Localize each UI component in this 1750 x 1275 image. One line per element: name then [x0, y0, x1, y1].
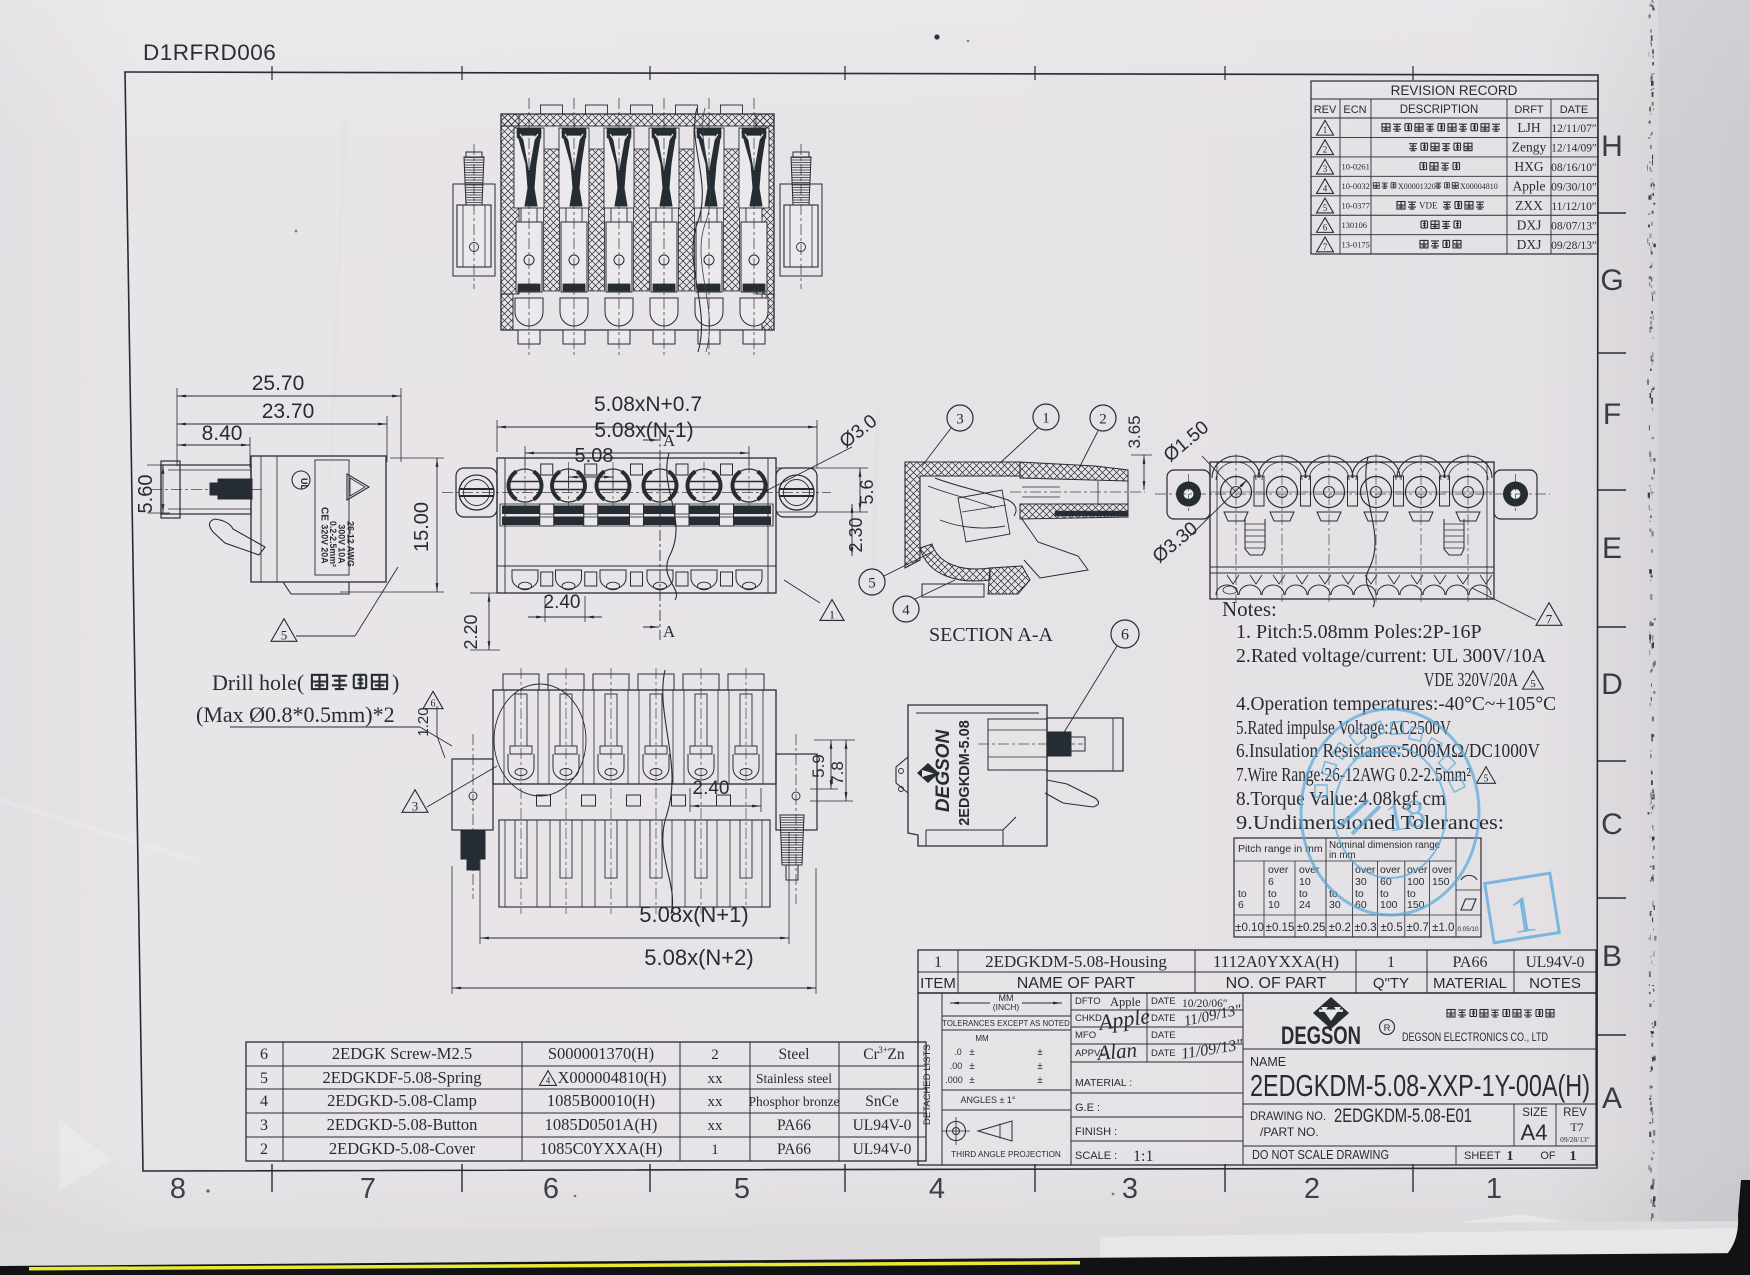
svg-text:2.40: 2.40 — [693, 778, 730, 799]
svg-text:2EDGKDM-5.08: 2EDGKDM-5.08 — [957, 720, 973, 826]
svg-text:7: 7 — [360, 1173, 376, 1205]
svg-text:G.E :: G.E : — [1075, 1102, 1100, 1114]
svg-text:MFO: MFO — [1075, 1030, 1096, 1041]
svg-text:2.20: 2.20 — [461, 614, 481, 649]
svg-text:±0.2: ±0.2 — [1329, 922, 1351, 934]
svg-text:±0.25: ±0.25 — [1297, 922, 1326, 934]
svg-text:6: 6 — [1323, 222, 1328, 232]
svg-text:5: 5 — [868, 575, 876, 591]
svg-text:±: ± — [1037, 1047, 1043, 1058]
svg-text:E: E — [1602, 532, 1622, 565]
svg-text:1. Pitch:5.08mm Poles:2P-16P: 1. Pitch:5.08mm Poles:2P-16P — [1236, 621, 1482, 643]
svg-text:±0.10: ±0.10 — [1235, 922, 1264, 934]
svg-text:Apple: Apple — [1513, 179, 1546, 194]
svg-text:Notes:: Notes: — [1222, 597, 1277, 621]
svg-text:3+: 3+ — [878, 1045, 888, 1055]
svg-text:CE: CE — [319, 507, 330, 521]
svg-text:±0.5: ±0.5 — [1380, 922, 1402, 934]
svg-text:over: over — [1380, 864, 1401, 876]
svg-text:ZXX: ZXX — [1515, 198, 1543, 213]
svg-text:4.Operation temperatures:-40°C: 4.Operation temperatures:-40°C~+105°C — [1236, 693, 1556, 715]
svg-text:HXG: HXG — [1514, 159, 1543, 174]
svg-text:3: 3 — [260, 1117, 268, 1134]
svg-text:1: 1 — [829, 607, 835, 621]
svg-text:5.08x(N+1): 5.08x(N+1) — [639, 902, 748, 927]
svg-text:1085B00010(H): 1085B00010(H) — [547, 1091, 655, 1110]
svg-text:10-0261: 10-0261 — [1342, 162, 1370, 172]
svg-text:09/28/13″: 09/28/13″ — [1560, 1135, 1590, 1144]
svg-text:R: R — [1384, 1023, 1391, 1034]
svg-text:2.Rated voltage/current: UL: 2.Rated voltage/current: UL 300V/10A — [1236, 645, 1547, 667]
svg-text:over: over — [1268, 864, 1289, 876]
svg-text:3.65: 3.65 — [1125, 415, 1144, 448]
svg-text:2EDGKD-5.08-Button: 2EDGKD-5.08-Button — [327, 1115, 478, 1134]
svg-text:3: 3 — [1122, 1173, 1138, 1205]
svg-text:6: 6 — [260, 1046, 268, 1063]
svg-text:1: 1 — [711, 1142, 719, 1158]
svg-text:REV: REV — [1314, 104, 1337, 116]
svg-text:±: ± — [969, 1075, 975, 1086]
svg-text:130106: 130106 — [1342, 220, 1368, 230]
svg-text:2EDGK Screw-M2.5: 2EDGK Screw-M2.5 — [332, 1044, 472, 1063]
svg-text:MM: MM — [975, 1034, 989, 1043]
svg-text:ANGLES ± 1°: ANGLES ± 1° — [960, 1095, 1015, 1105]
svg-text:REV: REV — [1563, 1107, 1587, 1119]
svg-text:08/16/10″: 08/16/10″ — [1551, 162, 1597, 174]
svg-text:B: B — [1602, 940, 1622, 973]
svg-text:Zn: Zn — [887, 1046, 904, 1063]
svg-text:G: G — [1600, 264, 1623, 297]
svg-text:PA66: PA66 — [777, 1117, 811, 1134]
svg-text:X00001320: X00001320 — [1398, 182, 1436, 191]
svg-text:09/28/13″: 09/28/13″ — [1551, 240, 1597, 252]
svg-text:±: ± — [969, 1047, 975, 1058]
svg-text:xx: xx — [708, 1094, 724, 1110]
svg-text:VDE: VDE — [1419, 201, 1438, 211]
svg-text:SHEET: SHEET — [1464, 1150, 1501, 1162]
svg-text:5.60: 5.60 — [135, 475, 157, 514]
svg-text:NAME: NAME — [1250, 1055, 1286, 1069]
svg-text:A4: A4 — [1521, 1120, 1548, 1145]
svg-text:F: F — [1603, 398, 1621, 431]
svg-text:UL94V-0: UL94V-0 — [853, 1117, 912, 1134]
svg-text:DRFT: DRFT — [1514, 104, 1544, 116]
svg-text:12/11/07″: 12/11/07″ — [1551, 123, 1596, 135]
svg-text:Alan: Alan — [1094, 1038, 1138, 1066]
svg-text:X000004810(H): X000004810(H) — [557, 1068, 666, 1087]
svg-text:2EDGKD-5.08-Clamp: 2EDGKD-5.08-Clamp — [327, 1091, 477, 1110]
svg-text:3: 3 — [956, 411, 964, 427]
svg-text:10: 10 — [1299, 876, 1311, 888]
svg-text:SnCe: SnCe — [865, 1093, 899, 1110]
svg-text:±: ± — [1037, 1061, 1043, 1072]
svg-text:2EDGKDM-5.08-E01: 2EDGKDM-5.08-E01 — [1334, 1106, 1472, 1127]
svg-text:08/07/13″: 08/07/13″ — [1551, 220, 1597, 232]
svg-text:1: 1 — [1507, 1149, 1514, 1164]
svg-text:DEGSON: DEGSON — [933, 729, 954, 813]
svg-text:2EDGKDM-5.08-XXP-1Y-00A(H): 2EDGKDM-5.08-XXP-1Y-00A(H) — [1250, 1068, 1590, 1103]
svg-text:2EDGKDF-5.08-Spring: 2EDGKDF-5.08-Spring — [322, 1068, 481, 1087]
svg-text:TOLERANCES EXCEPT AS NOTED: TOLERANCES EXCEPT AS NOTED — [942, 1019, 1070, 1028]
svg-text:VDE 320V/20A: VDE 320V/20A — [1424, 669, 1518, 691]
svg-text:.00: .00 — [950, 1061, 963, 1071]
svg-text:6: 6 — [1238, 899, 1244, 911]
svg-text:DXJ: DXJ — [1517, 217, 1542, 232]
svg-text:0.05/10: 0.05/10 — [1457, 926, 1479, 933]
svg-text:4: 4 — [902, 602, 910, 618]
svg-text:Phosphor bronze: Phosphor bronze — [748, 1094, 839, 1109]
svg-text:4: 4 — [260, 1093, 268, 1110]
svg-text:1085D0501A(H): 1085D0501A(H) — [545, 1115, 658, 1134]
svg-text:10: 10 — [1268, 899, 1280, 911]
svg-text:7.8: 7.8 — [828, 761, 847, 785]
svg-text:7: 7 — [1546, 611, 1553, 626]
svg-text:6: 6 — [1268, 876, 1274, 888]
svg-text:18: 18 — [1382, 790, 1429, 841]
svg-text:5: 5 — [1530, 678, 1536, 690]
svg-text:2EDGKD-5.08-Cover: 2EDGKD-5.08-Cover — [329, 1139, 476, 1158]
svg-text:ITEM: ITEM — [920, 975, 956, 992]
svg-text:PA66: PA66 — [777, 1141, 811, 1158]
svg-text:C: C — [1601, 808, 1623, 841]
svg-text:SCALE :: SCALE : — [1075, 1150, 1117, 1162]
svg-text:S000001370(H): S000001370(H) — [548, 1044, 654, 1063]
svg-text:A: A — [1602, 1082, 1622, 1115]
svg-text:2EDGKDM-5.08-Housing: 2EDGKDM-5.08-Housing — [985, 952, 1167, 971]
svg-text:1: 1 — [1570, 1149, 1577, 1164]
svg-text:4: 4 — [546, 1075, 551, 1085]
svg-text:DEGSON: DEGSON — [1281, 1022, 1361, 1050]
svg-text:DATE: DATE — [1560, 104, 1589, 116]
svg-text:LJH: LJH — [1517, 120, 1541, 135]
svg-text:5.08x(N-1): 5.08x(N-1) — [594, 419, 693, 442]
svg-text:30: 30 — [1329, 899, 1341, 911]
svg-text:xx: xx — [708, 1118, 724, 1134]
svg-text:±: ± — [1037, 1075, 1043, 1086]
svg-text:6: 6 — [543, 1173, 559, 1205]
svg-text:ECN: ECN — [1343, 104, 1366, 116]
svg-text:A: A — [663, 622, 676, 641]
svg-text:7: 7 — [1323, 242, 1328, 252]
svg-text:26-12 AWG: 26-12 AWG — [345, 521, 355, 567]
svg-text:1:1: 1:1 — [1133, 1148, 1153, 1165]
svg-text:MATERIAL :: MATERIAL : — [1075, 1077, 1132, 1089]
svg-text:Stainless steel: Stainless steel — [756, 1071, 832, 1086]
svg-text:DESCRIPTION: DESCRIPTION — [1400, 104, 1479, 116]
svg-text:PA66: PA66 — [1453, 954, 1488, 971]
svg-text:1: 1 — [934, 954, 942, 971]
svg-text:5.08: 5.08 — [575, 445, 614, 467]
svg-text:24: 24 — [1299, 899, 1311, 911]
svg-text:THIRD ANGLE PROJECTION: THIRD ANGLE PROJECTION — [951, 1150, 1061, 1159]
svg-text:Q"TY: Q"TY — [1373, 975, 1409, 992]
svg-text:320V 20A: 320V 20A — [320, 524, 330, 564]
svg-text:5: 5 — [1323, 203, 1328, 213]
svg-text:): ) — [392, 670, 399, 695]
svg-text:100: 100 — [1407, 876, 1425, 888]
svg-text:Zengy: Zengy — [1512, 140, 1547, 155]
svg-text:MATERIAL: MATERIAL — [1433, 975, 1507, 992]
svg-text:.000: .000 — [945, 1075, 963, 1085]
svg-text:FINISH :: FINISH : — [1075, 1126, 1117, 1138]
svg-text:±: ± — [969, 1061, 975, 1072]
svg-text:15.00: 15.00 — [411, 502, 433, 552]
svg-text:SIZE: SIZE — [1522, 1107, 1548, 1119]
svg-text:DETACHED LISTS: DETACHED LISTS — [922, 1044, 933, 1125]
svg-text:5.9: 5.9 — [809, 754, 828, 778]
svg-text:DXJ: DXJ — [1517, 237, 1542, 252]
svg-text:NO. OF PART: NO. OF PART — [1226, 975, 1327, 992]
svg-text:2.30: 2.30 — [846, 517, 866, 552]
svg-text:1112A0YXXA(H): 1112A0YXXA(H) — [1213, 952, 1339, 971]
svg-text:5: 5 — [1484, 773, 1489, 784]
svg-text:±0.15: ±0.15 — [1266, 922, 1295, 934]
svg-text:1: 1 — [1042, 410, 1050, 426]
svg-text:3: 3 — [1323, 164, 1328, 174]
svg-text:over: over — [1432, 864, 1453, 876]
svg-text:30: 30 — [1355, 876, 1367, 888]
svg-text:REVISION RECORD: REVISION RECORD — [1391, 83, 1518, 98]
svg-text:Drill hole(: Drill hole( — [212, 670, 304, 695]
svg-text:NAME OF PART: NAME OF PART — [1017, 975, 1136, 992]
svg-text:2: 2 — [1323, 145, 1328, 155]
svg-text:±0.7: ±0.7 — [1407, 922, 1429, 934]
svg-text:DATE: DATE — [1151, 1013, 1176, 1024]
svg-text:DATE: DATE — [1151, 996, 1176, 1007]
svg-text:09/30/10″: 09/30/10″ — [1551, 182, 1597, 194]
svg-text:13-0175: 13-0175 — [1342, 239, 1370, 249]
svg-text:4: 4 — [929, 1173, 945, 1205]
svg-text:±1.0: ±1.0 — [1432, 922, 1454, 934]
svg-text:3: 3 — [412, 798, 419, 813]
svg-text:DRAWING NO.: DRAWING NO. — [1250, 1111, 1326, 1123]
svg-text:UL94V-0: UL94V-0 — [853, 1141, 912, 1158]
svg-text:150: 150 — [1432, 876, 1450, 888]
svg-text:1: 1 — [1387, 954, 1395, 971]
svg-text:5: 5 — [281, 627, 288, 642]
svg-text:A: A — [663, 431, 676, 450]
svg-text:X00004810: X00004810 — [1460, 182, 1498, 191]
svg-text:DEGSON ELECTRONICS CO., LTD: DEGSON ELECTRONICS CO., LTD — [1402, 1032, 1548, 1044]
svg-text:0.2-2.5mm²: 0.2-2.5mm² — [328, 521, 338, 567]
svg-text:300V 10A: 300V 10A — [337, 524, 347, 564]
svg-text:.0: .0 — [954, 1047, 962, 1057]
svg-text:5: 5 — [734, 1173, 750, 1205]
svg-text:Steel: Steel — [779, 1046, 810, 1063]
svg-text:11/12/10″: 11/12/10″ — [1551, 201, 1596, 213]
svg-text:D: D — [1601, 668, 1623, 701]
svg-text:±0.3: ±0.3 — [1354, 922, 1376, 934]
svg-text:T7: T7 — [1570, 1120, 1583, 1134]
svg-text:(INCH): (INCH) — [993, 1002, 1020, 1012]
svg-text:6: 6 — [1121, 627, 1129, 644]
svg-text:25.70: 25.70 — [252, 372, 305, 395]
svg-text:xx: xx — [708, 1071, 724, 1087]
svg-text:UL: UL — [299, 478, 309, 490]
svg-text:10-0032: 10-0032 — [1342, 181, 1370, 191]
svg-text:5.08x(N+2): 5.08x(N+2) — [644, 945, 753, 970]
svg-text:12/14/09″: 12/14/09″ — [1551, 143, 1597, 155]
svg-text:2.40: 2.40 — [544, 592, 581, 613]
svg-text:Cr: Cr — [863, 1046, 879, 1063]
svg-text:1085C0YXXA(H): 1085C0YXXA(H) — [540, 1139, 663, 1158]
svg-text:8.40: 8.40 — [202, 422, 243, 445]
svg-text:23.70: 23.70 — [262, 400, 315, 423]
svg-text:DO NOT SCALE DRAWING: DO NOT SCALE DRAWING — [1252, 1147, 1389, 1162]
svg-text:5: 5 — [260, 1070, 268, 1087]
svg-text:UL94V-0: UL94V-0 — [1526, 954, 1585, 971]
svg-text:2: 2 — [1304, 1173, 1320, 1205]
svg-text:10-0377: 10-0377 — [1342, 201, 1370, 211]
svg-text:D1RFRD006: D1RFRD006 — [143, 40, 276, 65]
svg-text:/PART NO.: /PART NO. — [1260, 1125, 1319, 1139]
svg-text:8: 8 — [170, 1173, 186, 1205]
svg-text:5.6: 5.6 — [857, 479, 877, 504]
svg-text:100: 100 — [1380, 899, 1398, 911]
svg-text:H: H — [1601, 130, 1623, 163]
svg-text:DFTO: DFTO — [1075, 996, 1101, 1007]
svg-text:(Max Ø0.8*0.5mm)*2: (Max Ø0.8*0.5mm)*2 — [196, 702, 395, 727]
svg-text:SECTION A-A: SECTION A-A — [929, 624, 1053, 646]
svg-text:DATE: DATE — [1151, 1030, 1176, 1041]
svg-text:5.08xN+0.7: 5.08xN+0.7 — [594, 393, 702, 416]
svg-text:2: 2 — [260, 1141, 268, 1158]
svg-text:NOTES: NOTES — [1529, 975, 1581, 992]
svg-text:1: 1 — [1486, 1173, 1502, 1205]
svg-text:Pitch range in mm: Pitch range in mm — [1238, 843, 1323, 855]
svg-text:1: 1 — [1323, 125, 1328, 135]
svg-text:2: 2 — [1099, 411, 1107, 427]
svg-text:OF: OF — [1540, 1150, 1556, 1162]
svg-text:2: 2 — [711, 1047, 719, 1063]
svg-text:4: 4 — [1323, 183, 1328, 193]
svg-text:DATE: DATE — [1151, 1048, 1176, 1059]
